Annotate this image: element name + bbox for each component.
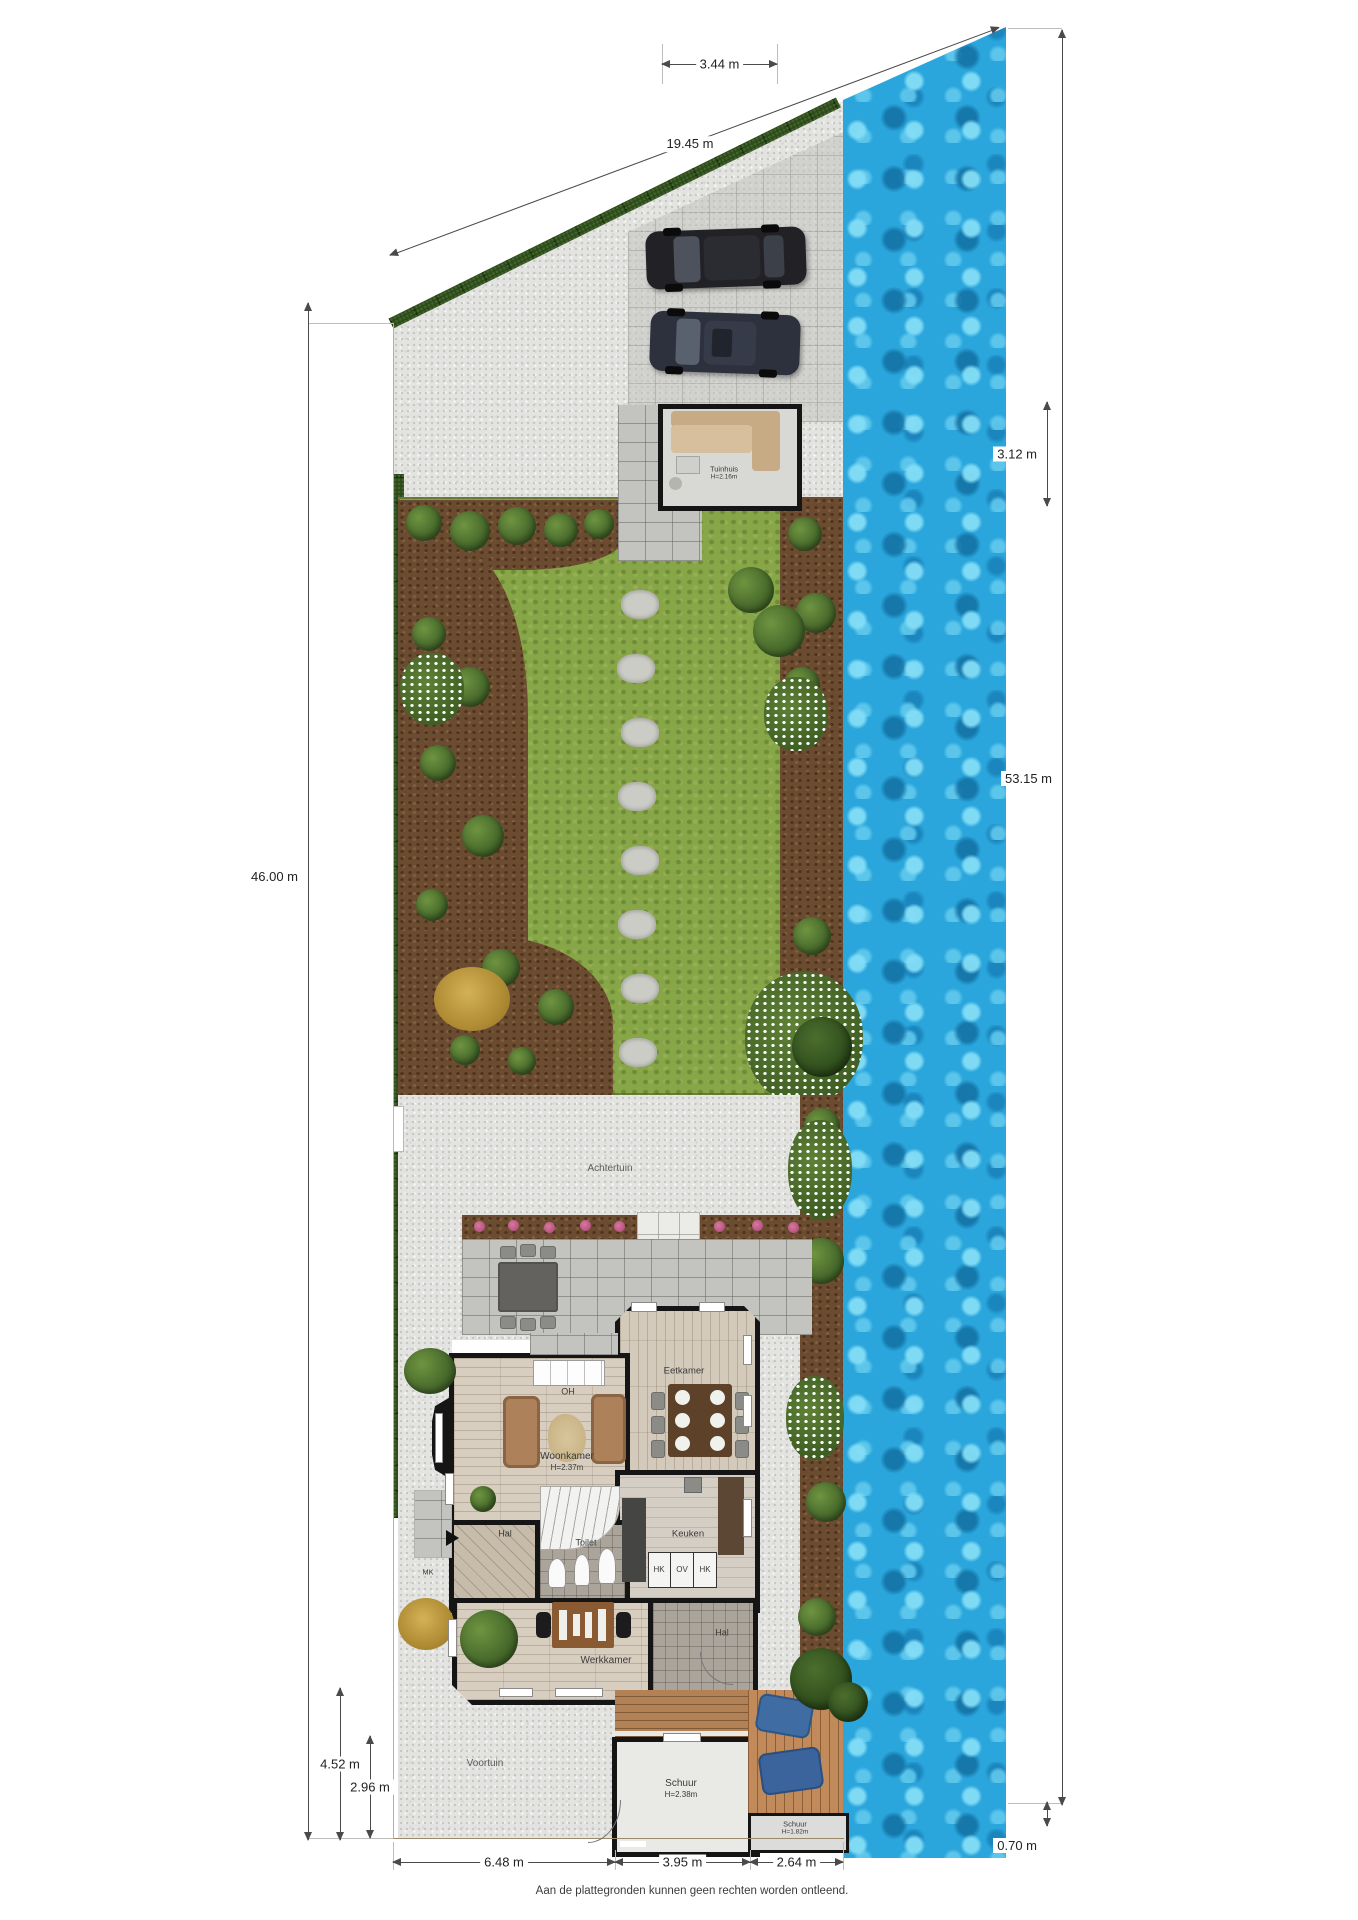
dim-left-value: 46.00 m (247, 869, 302, 884)
bush (462, 815, 504, 857)
bush (450, 511, 490, 551)
stepping-stone (618, 655, 654, 682)
plate-icon (710, 1436, 725, 1451)
dining-table (668, 1384, 732, 1457)
keuken-label: Keuken (672, 1528, 704, 1539)
window (700, 1303, 724, 1311)
desk (552, 1602, 614, 1648)
car-windshield (675, 318, 701, 365)
bush (793, 917, 831, 955)
dining-chair (651, 1440, 665, 1458)
flower-icon (614, 1221, 625, 1232)
hk1-label: HK (653, 1565, 664, 1575)
toilet-fixture (598, 1548, 616, 1584)
veranda-glass (533, 1360, 605, 1386)
flower-icon (752, 1220, 763, 1231)
wheel-icon (763, 280, 781, 289)
bush (753, 605, 805, 657)
hk2-label: HK (699, 1565, 710, 1575)
tree (792, 1017, 852, 1077)
woonkamer-height: H=2.37m (540, 1463, 594, 1473)
paper-icon (598, 1609, 606, 1641)
terrace-flowerbed (700, 1215, 812, 1239)
bush (404, 1348, 456, 1394)
ornamental-grass (434, 967, 510, 1031)
stepping-stone (620, 1039, 656, 1066)
woonkamer-name: Woonkamer (540, 1451, 594, 1462)
flower-bush (400, 653, 464, 725)
window (446, 1474, 453, 1504)
dim-diagonal-value: 19.45 m (667, 136, 714, 151)
window (556, 1689, 602, 1696)
patio-chair (540, 1316, 556, 1329)
window (632, 1303, 656, 1311)
dim-bottom-right-value: 2.64 m (773, 1855, 821, 1870)
kitchen-counter (718, 1477, 744, 1555)
patio-chair (520, 1318, 536, 1331)
plate-icon (675, 1390, 690, 1405)
plate-icon (675, 1413, 690, 1428)
tuinhuis-table (677, 457, 699, 473)
flower-icon (544, 1222, 555, 1233)
bush (538, 989, 574, 1025)
ornamental-grass (398, 1598, 454, 1650)
tuinhuis-stove-icon (669, 477, 682, 490)
dining-chair (651, 1392, 665, 1410)
bush (406, 505, 442, 541)
dining-chair (735, 1440, 749, 1458)
dim-right-upper-value: 3.12 m (993, 447, 1041, 462)
window (449, 1620, 456, 1656)
achtertuin-label: Achtertuin (587, 1163, 632, 1175)
porch-floor (530, 1333, 618, 1355)
bush (798, 1598, 836, 1636)
extension-line (1008, 1803, 1062, 1804)
stepping-stone (622, 847, 658, 874)
window (500, 1689, 532, 1696)
schuur2-height: H=1.82m (782, 1829, 809, 1837)
sofa (591, 1394, 626, 1464)
wheel-icon (663, 228, 681, 237)
bush (508, 1047, 536, 1075)
oh-label: OH (561, 1387, 575, 1398)
car-sedan (649, 310, 801, 375)
kitchen-appliance (684, 1477, 702, 1493)
window (744, 1396, 751, 1426)
wheel-icon (665, 284, 683, 293)
flower-bush (786, 1376, 844, 1460)
dining-chair (651, 1416, 665, 1434)
flower-bush (764, 677, 828, 751)
site-plan: Tuinhuis H=2.16m Achtertuin (0, 0, 1358, 1920)
paper-icon (559, 1610, 567, 1640)
bush (460, 1610, 518, 1668)
tuinhuis-sofa-seat (671, 425, 752, 453)
garden-lawn (398, 497, 843, 1095)
flower-icon (474, 1221, 485, 1232)
bush (498, 507, 536, 545)
extension-line (1008, 28, 1062, 29)
tuinhuis-height: H=2.16m (710, 474, 738, 482)
plate-icon (675, 1436, 690, 1451)
toilet-fixture (574, 1554, 590, 1586)
tuinhuis-paving (618, 405, 660, 500)
paper-icon (573, 1614, 580, 1636)
dim-diagonal-label: 19.45 m (663, 136, 718, 152)
stepping-stone (622, 975, 658, 1002)
stepping-stone (619, 911, 655, 938)
bush (728, 567, 774, 613)
bush (450, 1035, 480, 1065)
eetkamer-label: Eetkamer (664, 1365, 705, 1376)
dim-right-lower-value: 0.70 m (993, 1838, 1041, 1853)
bush (544, 513, 578, 547)
hal2-room (648, 1598, 758, 1700)
schuur2-label: Schuur H=1.82m (782, 1820, 809, 1837)
werkkamer-label: Werkkamer (581, 1655, 632, 1667)
water-canal (843, 20, 1006, 1858)
patio-chair (520, 1244, 536, 1257)
bush (584, 509, 614, 539)
bay-window (432, 1396, 452, 1480)
wheel-icon (759, 369, 777, 378)
tuinhuis-room (658, 404, 802, 511)
bush (806, 1482, 846, 1522)
car-windshield (673, 236, 701, 283)
patio-table (498, 1262, 558, 1312)
lounge-chair (757, 1746, 824, 1796)
mk-label: MK (422, 1568, 433, 1577)
toilet-fixture (548, 1558, 566, 1588)
flower-icon (580, 1220, 591, 1231)
stepping-stone (619, 783, 655, 810)
dim-right-value: 53.15 m (1001, 771, 1056, 786)
disclaimer-text: Aan de plattegronden kunnen geen rechten… (536, 1885, 849, 1897)
bush (420, 745, 456, 781)
deck (615, 1690, 748, 1737)
window (664, 1734, 700, 1741)
flower-icon (788, 1222, 799, 1233)
bush (416, 889, 448, 921)
extension-line (308, 1838, 393, 1839)
stepping-stone (622, 719, 658, 746)
desk-chair (616, 1612, 631, 1638)
tuinhuis-label: Tuinhuis H=2.16m (710, 465, 738, 482)
tuinhuis-name: Tuinhuis (710, 465, 738, 474)
extension-line (308, 323, 393, 324)
hal-label: Hal (498, 1529, 512, 1540)
flower-icon (714, 1221, 725, 1232)
dim-top-value: 3.44 m (696, 57, 744, 72)
bush (788, 517, 822, 551)
toilet-label: Toilet (575, 1538, 596, 1549)
kitchen-counter (622, 1498, 646, 1582)
dim-left-outer-value: 4.52 m (316, 1757, 364, 1772)
wheel-icon (761, 311, 779, 320)
tuinhuis-sofa (752, 411, 780, 471)
schuur-name: Schuur (665, 1778, 697, 1789)
voortuin-label: Voortuin (467, 1758, 504, 1770)
stepping-stone (622, 591, 658, 618)
tree (828, 1682, 868, 1722)
dim-bottom-mid-value: 3.95 m (659, 1855, 707, 1870)
bush (412, 617, 446, 651)
patio-chair (500, 1316, 516, 1329)
wheel-icon (761, 224, 779, 233)
ov-label: OV (676, 1565, 688, 1575)
schuur-door-gap (620, 1841, 646, 1847)
bay-window-glass (436, 1414, 442, 1462)
bush (470, 1486, 496, 1512)
car-suv (645, 226, 807, 290)
dim-bottom-left-value: 6.48 m (480, 1855, 528, 1870)
schuur-height: H=2.38m (665, 1790, 698, 1800)
schuur2-name: Schuur (783, 1820, 807, 1829)
window (744, 1500, 751, 1536)
car-roof (703, 235, 761, 281)
hedge-gate (393, 1106, 404, 1152)
woonkamer-label: Woonkamer H=2.37m (540, 1451, 594, 1473)
patio-chair (540, 1246, 556, 1259)
window (744, 1336, 751, 1364)
wheel-icon (667, 308, 685, 317)
hal2-label: Hal (715, 1628, 729, 1639)
car-rear-glass (763, 235, 784, 278)
car-sunroof (712, 329, 733, 358)
dim-left-inner-value: 2.96 m (346, 1780, 394, 1795)
flower-icon (508, 1220, 519, 1231)
sofa (503, 1396, 540, 1468)
schuur-label: Schuur H=2.38m (665, 1778, 698, 1800)
plate-icon (710, 1390, 725, 1405)
paper-icon (585, 1612, 592, 1638)
plate-icon (710, 1413, 725, 1428)
entrance-arrow-icon (446, 1530, 459, 1546)
terrace-flowerbed (462, 1215, 637, 1239)
flower-bush (788, 1120, 852, 1220)
wheel-icon (665, 366, 683, 375)
patio-chair (500, 1246, 516, 1259)
desk-chair (536, 1612, 551, 1638)
